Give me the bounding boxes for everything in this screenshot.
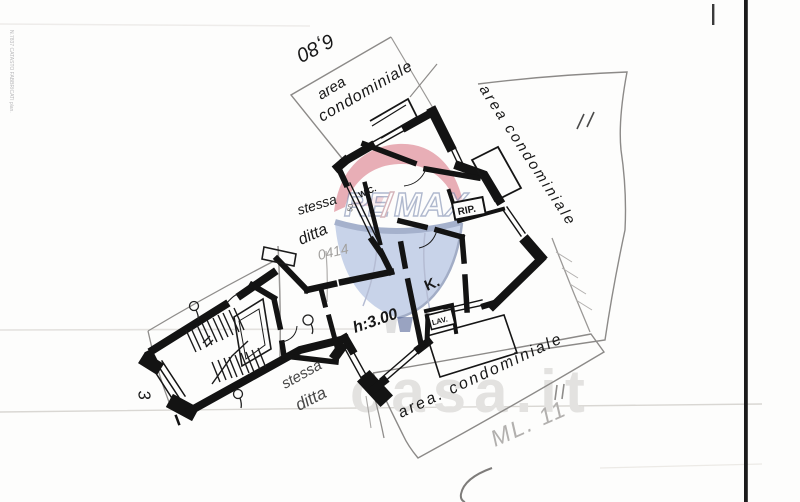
svg-text:N.7837 CATASTO FABBRICATI plan: N.7837 CATASTO FABBRICATI plan.: [8, 30, 14, 113]
svg-text:50: 50: [347, 203, 355, 212]
